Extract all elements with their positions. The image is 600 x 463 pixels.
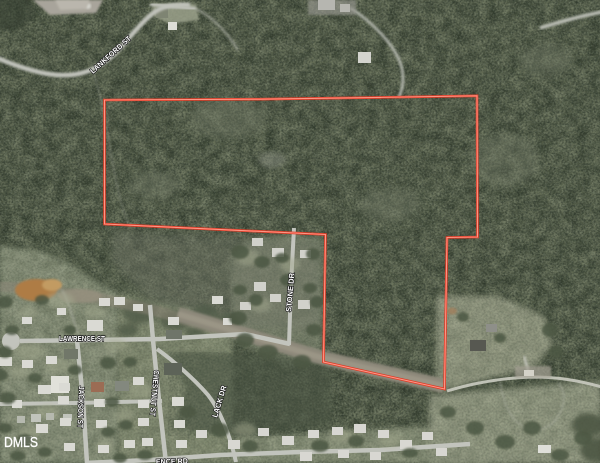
- svg-text:JACKSON ST: JACKSON ST: [76, 386, 86, 429]
- svg-text:LAWRENCE ST: LAWRENCE ST: [59, 334, 105, 343]
- svg-text:ENCE RD: ENCE RD: [156, 456, 189, 463]
- svg-text:DMLS: DMLS: [4, 434, 38, 451]
